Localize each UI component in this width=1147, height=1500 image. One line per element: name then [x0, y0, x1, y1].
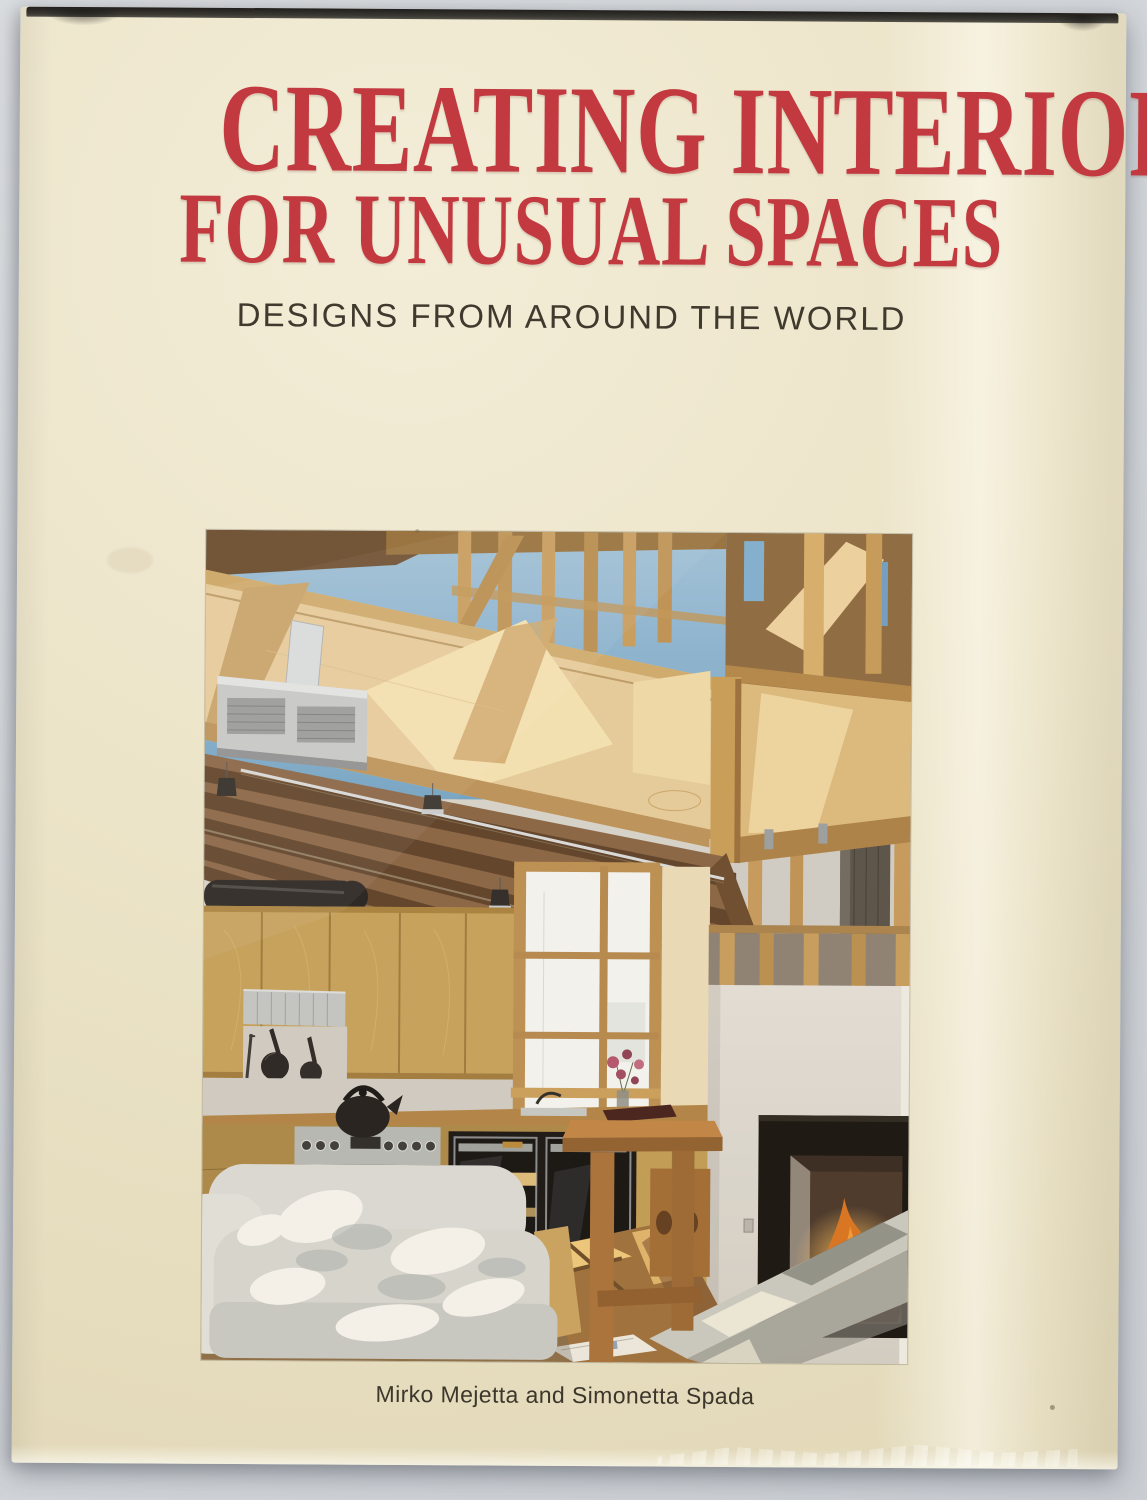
top-left-corner-wear — [38, 9, 128, 32]
jacket-speck — [1050, 1405, 1055, 1410]
subtitle: DESIGNS FROM AROUND THE WORLD — [18, 295, 1124, 340]
jacket-speck-small — [415, 529, 419, 533]
cover-photo — [201, 530, 912, 1364]
title-line-2: FOR UNUSUAL SPACES — [179, 178, 1003, 284]
top-right-corner-wear — [1052, 15, 1112, 37]
jacket-stain — [107, 547, 153, 573]
book-cover: CREATING INTERIORS FOR UNUSUAL SPACES DE… — [12, 7, 1127, 1470]
title-block-2: FOR UNUSUAL SPACES — [19, 177, 1126, 285]
interior-photo-illustration — [201, 530, 912, 1364]
author-line: Mirko Mejetta and Simonetta Spada — [12, 1379, 1118, 1413]
